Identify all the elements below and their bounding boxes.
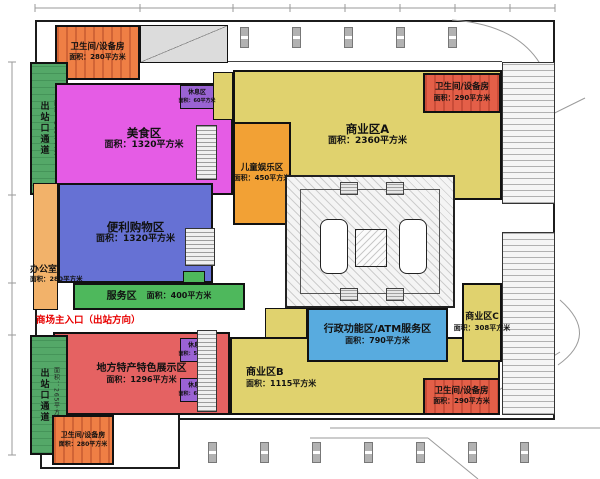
zone-area: 面积：280平方米 xyxy=(59,442,108,449)
zone-area: 面积：280平方米 xyxy=(69,54,126,62)
zone-name: 商业区C xyxy=(465,313,499,323)
zone-area: 面积：450平方米 xyxy=(234,175,291,183)
zone-commercial-c: 商业区C 面积：308平方米 xyxy=(462,283,502,362)
atrium-void-right xyxy=(399,219,427,274)
zone-name: 行政功能区/ATM服务区 xyxy=(324,324,431,335)
zone-name: 出站口通道 xyxy=(38,368,51,423)
ramp-stairs-top-right xyxy=(502,62,555,204)
central-atrium-core xyxy=(285,175,455,308)
zone-area: 面积：1320平方米 xyxy=(96,235,175,245)
zone-name: 卫生间/设备房 xyxy=(435,83,489,92)
atrium-void-left xyxy=(320,219,348,274)
zone-restroom-equipment-top-right: 卫生间/设备房 面积：290平方米 xyxy=(423,73,501,113)
zone-name: 儿童娱乐区 xyxy=(241,164,284,173)
zone-admin-atm-services: 行政功能区/ATM服务区 面积：790平方米 xyxy=(307,308,448,362)
zone-area: 面积：400平方米 xyxy=(147,292,212,301)
zone-name: 服务区 xyxy=(107,291,137,302)
column-marker xyxy=(396,27,405,48)
stair-band-middle xyxy=(185,228,215,266)
interior-wall-line xyxy=(228,61,502,62)
office-label: 办公室 面积：280平方米 xyxy=(30,266,83,283)
zone-name: 卫生间/设备房 xyxy=(434,387,488,396)
zone-area: 面积：1320平方米 xyxy=(104,141,183,151)
column-marker xyxy=(416,442,425,463)
zone-name: 出站口通道 xyxy=(38,101,51,156)
column-marker xyxy=(240,27,249,48)
zone-office-strip xyxy=(33,183,58,310)
column-marker xyxy=(520,442,529,463)
floor-plan: 卫生间/设备房 面积：280平方米 出站口通道 面积：265平方米 美食区 面积… xyxy=(0,0,600,479)
column-marker xyxy=(312,442,321,463)
zone-rest-area-60: 休息区 面积：60平方米 xyxy=(180,85,214,109)
zone-area: 面积：1115平方米 xyxy=(246,380,316,389)
zone-area: 面积：2360平方米 xyxy=(328,137,407,147)
zone-area: 面积：290平方米 xyxy=(433,398,490,406)
escalator-icon xyxy=(340,288,358,301)
column-marker xyxy=(292,27,301,48)
main-entrance-note: 商场主入口（出站方向） xyxy=(36,312,141,326)
zone-area: 面积：1296平方米 xyxy=(106,376,176,385)
zone-restroom-equipment-bottom-left: 卫生间/设备房 面积：280平方米 xyxy=(52,415,114,465)
zone-service-notch xyxy=(183,271,205,283)
column-marker xyxy=(260,442,269,463)
zone-commercial-b-step xyxy=(265,308,307,338)
zone-name: 美食区 xyxy=(127,127,162,140)
escalator-icon xyxy=(386,182,404,195)
elevator-shaft xyxy=(355,229,387,267)
zone-area: 面积：290平方米 xyxy=(434,95,491,103)
column-marker xyxy=(364,442,373,463)
zone-name: 卫生间/设备房 xyxy=(61,432,106,440)
zone-restroom-equipment-bottom-right: 卫生间/设备房 面积：290平方米 xyxy=(423,378,500,415)
stair-band-lower xyxy=(197,330,217,412)
zone-area: 面积：790平方米 xyxy=(345,337,410,346)
stair-band-upper xyxy=(196,125,217,180)
zone-area: 面积：60平方米 xyxy=(179,99,216,105)
zone-name: 商业区B xyxy=(246,367,284,378)
zone-service-area: 服务区 面积：400平方米 xyxy=(73,283,245,310)
zone-commercial-a-tab xyxy=(213,72,233,120)
zone-area: 面积：280平方米 xyxy=(30,276,83,283)
escalator-icon xyxy=(340,182,358,195)
column-marker xyxy=(448,27,457,48)
zone-utility-gray-room xyxy=(140,25,228,63)
zone-kids-entertainment: 儿童娱乐区 面积：450平方米 xyxy=(233,122,291,225)
zone-name: 便利购物区 xyxy=(107,221,165,234)
zone-name: 休息区 xyxy=(188,90,206,97)
zone-name: 商业区A xyxy=(346,123,389,136)
column-marker xyxy=(208,442,217,463)
zone-name: 地方特产特色展示区 xyxy=(97,363,187,374)
zone-area: 面积：308平方米 xyxy=(454,325,511,333)
column-marker xyxy=(468,442,477,463)
escalator-icon xyxy=(386,288,404,301)
zone-name: 卫生间/设备房 xyxy=(70,43,124,52)
column-marker xyxy=(344,27,353,48)
